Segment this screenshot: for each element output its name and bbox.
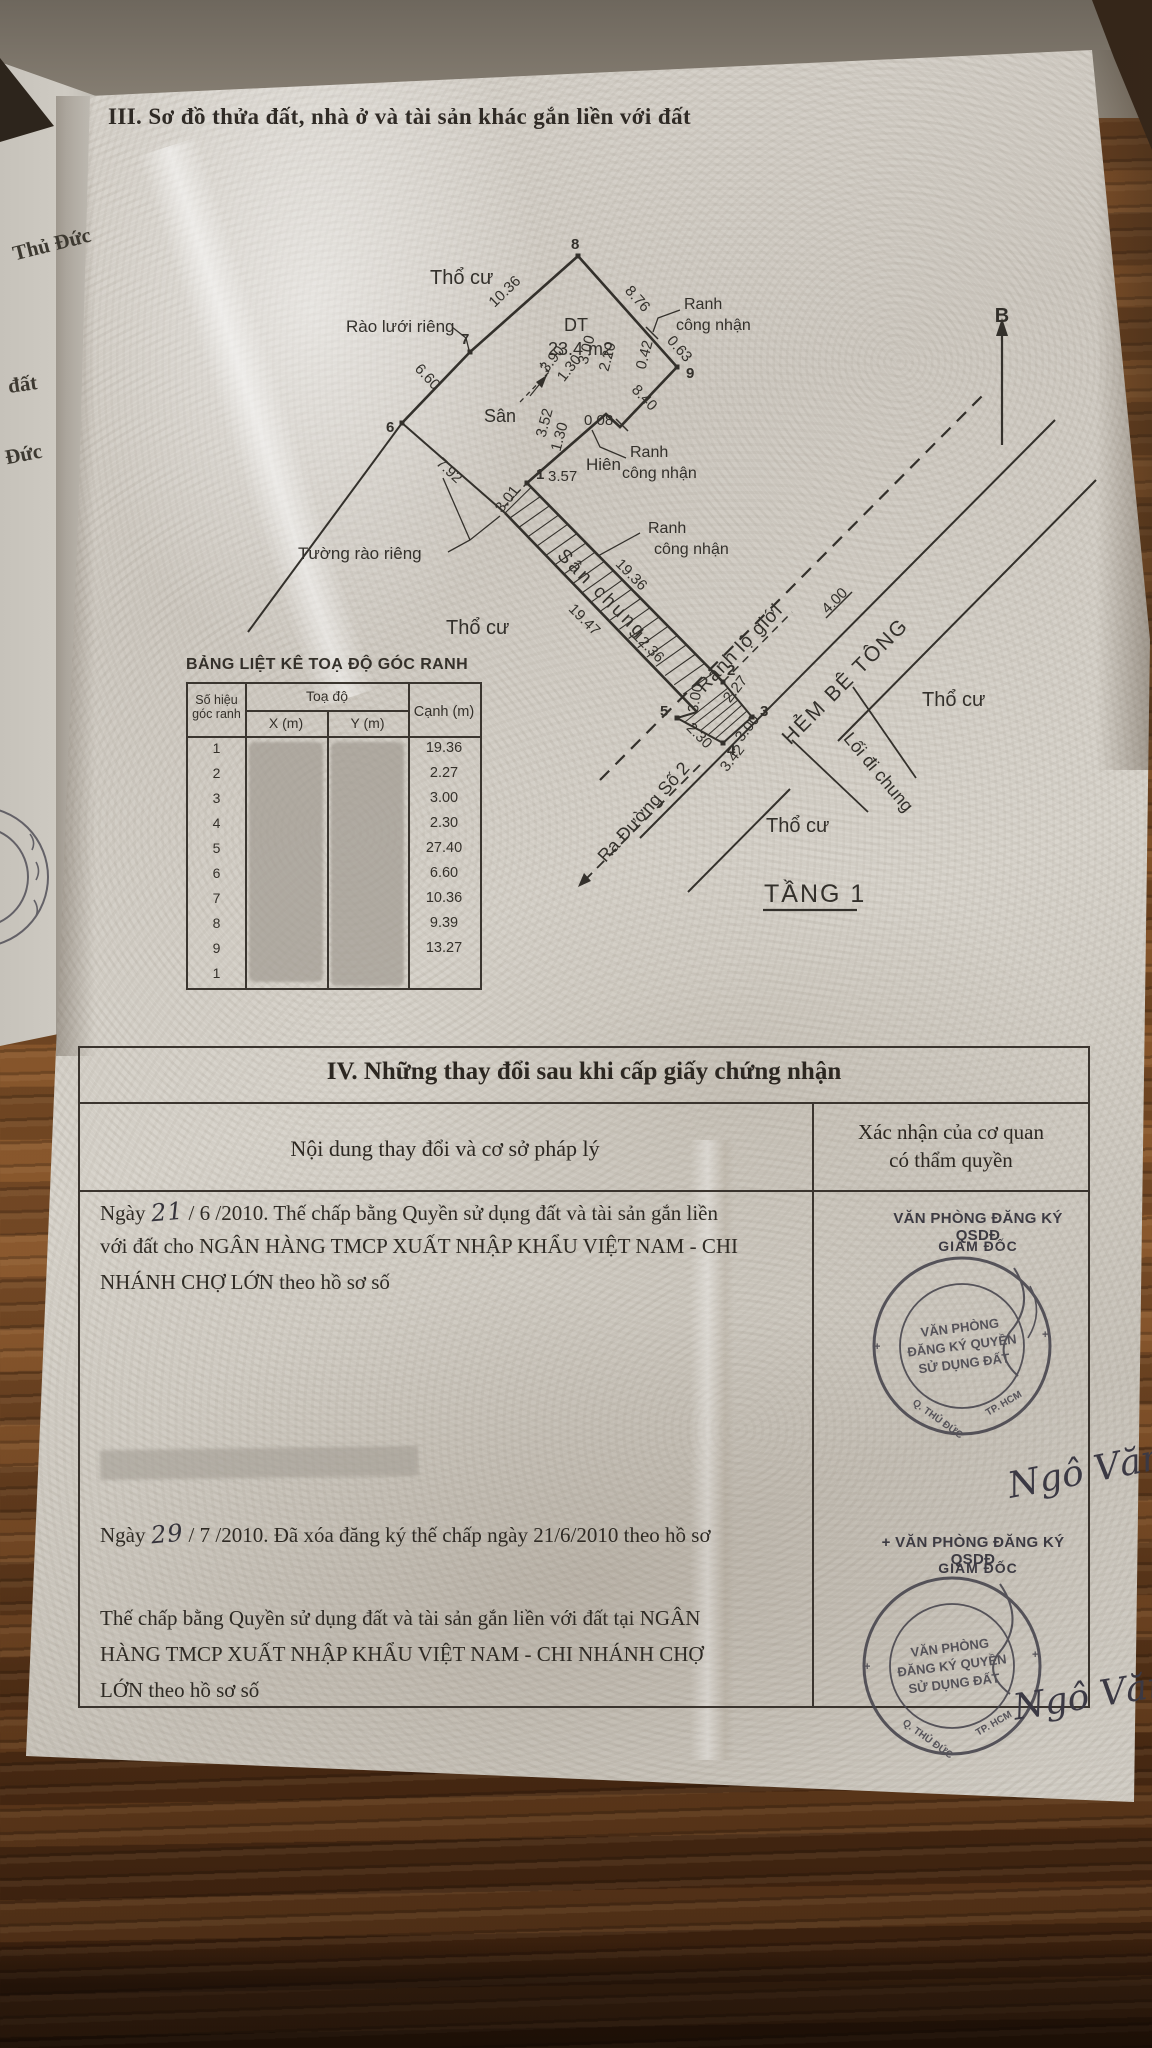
entry-text: / 7 /2010. Đã xóa đăng ký thế chấp ngày … bbox=[183, 1523, 710, 1547]
hatch-line bbox=[528, 515, 558, 536]
svg-text:+: + bbox=[1032, 1649, 1038, 1661]
diagram-label: 0.63 bbox=[663, 332, 695, 365]
boundary-point-marker bbox=[525, 481, 530, 486]
diagram-label: Sân bbox=[484, 406, 516, 426]
entry-text: với đất cho NGÂN HÀNG TMCP XUẤT NHẬP KHẨ… bbox=[100, 1234, 738, 1258]
diagram-label: công nhận bbox=[622, 465, 697, 482]
diagram-label: công nhận bbox=[654, 541, 729, 558]
col-header-coords: Toạ độ bbox=[245, 688, 409, 704]
hatch-line bbox=[537, 524, 567, 545]
divider bbox=[80, 1190, 1088, 1192]
diagram-label: Thổ cư bbox=[446, 617, 509, 639]
svg-text:+: + bbox=[864, 1661, 870, 1673]
change-entry: Thế chấp bằng Quyền sử dụng đất và tài s… bbox=[100, 1606, 800, 1714]
partial-stamp-left-edge bbox=[0, 782, 64, 972]
divider bbox=[80, 1102, 1088, 1104]
edge-length-cell: 10.36 bbox=[408, 890, 480, 906]
redacted-text-smudge bbox=[100, 1446, 418, 1480]
diagram-label: 0.08 bbox=[584, 412, 613, 429]
coordinate-table-grid: Số hiệugóc ranh Toạ độ X (m) Y (m) Cạnh … bbox=[186, 682, 482, 990]
edge-length-cell: 13.27 bbox=[408, 940, 480, 956]
redacted-x-values bbox=[249, 742, 323, 982]
diagram-label: DT bbox=[564, 315, 588, 335]
diagram-label: Rào lưới riêng bbox=[346, 317, 455, 336]
round-stamp-1: VĂN PHÒNG ĐĂNG KÝ QUYỀN SỬ DỤNG ĐẤT Q. T… bbox=[862, 1246, 1062, 1446]
change-entry: Ngày 21 / 6 /2010. Thế chấp bằng Quyền s… bbox=[100, 1198, 800, 1306]
boundary-point-marker bbox=[675, 716, 680, 721]
edge-length-cell: 2.27 bbox=[408, 765, 480, 781]
entry-line: NHÁNH CHỢ LỚN theo hồ sơ số bbox=[100, 1270, 800, 1306]
photo-of-land-certificate: { "colors":{"ink":"#33302b","paper":"#d6… bbox=[0, 0, 1152, 2048]
entry-line: HÀNG TMCP XUẤT NHẬP KHẨU VIỆT NAM - CHI … bbox=[100, 1642, 800, 1678]
divider bbox=[812, 1102, 814, 1706]
point-id-cell: 9 bbox=[188, 940, 245, 956]
boundary-point-marker bbox=[576, 254, 581, 259]
entry-text: / 6 /2010. Thế chấp bằng Quyền sử dụng đ… bbox=[183, 1201, 718, 1225]
diagram-label: 6.60 bbox=[411, 360, 443, 393]
entry-text: Ngày bbox=[100, 1201, 151, 1225]
diagram-label: Lối đi chung bbox=[840, 729, 918, 816]
edge-length-cell: 19.36 bbox=[408, 740, 480, 756]
redacted-y-values bbox=[331, 742, 404, 986]
diagram-label: 1 bbox=[536, 466, 544, 483]
diagram-label: B bbox=[995, 305, 1009, 327]
boundary-point-marker bbox=[721, 741, 726, 746]
diagram-label: Ra Đường Số 2 bbox=[594, 758, 694, 866]
diagram-line bbox=[248, 423, 402, 632]
diagram-label: 3.00 bbox=[685, 682, 707, 714]
diagram-label: Thổ cư bbox=[922, 689, 985, 711]
diagram-label: 7.92 bbox=[433, 455, 466, 487]
point-id-cell: 2 bbox=[188, 765, 245, 781]
point-id-cell: 1 bbox=[188, 965, 245, 981]
col-header-y: Y (m) bbox=[327, 715, 408, 731]
round-stamp-2: VĂN PHÒNG ĐĂNG KÝ QUYỀN SỬ DỤNG ĐẤT Q. T… bbox=[852, 1566, 1052, 1766]
diagram-label: 8 bbox=[571, 236, 579, 253]
boundary-point-marker bbox=[675, 365, 680, 370]
entry-line: Ngày 29 / 7 /2010. Đã xóa đăng ký thế ch… bbox=[100, 1520, 800, 1556]
point-id-cell: 7 bbox=[188, 890, 245, 906]
edge-length-cell: 27.40 bbox=[408, 840, 480, 856]
diagram-label: Ranh bbox=[684, 296, 722, 313]
svg-text:+: + bbox=[1042, 1329, 1048, 1341]
diagram-label: Hiên bbox=[586, 455, 621, 474]
section-3-title: III. Sơ đồ thửa đất, nhà ở và tài sản kh… bbox=[108, 104, 868, 130]
diagram-line bbox=[448, 516, 500, 552]
diagram-label: Ranh bbox=[630, 444, 668, 461]
hatch-line bbox=[665, 654, 695, 675]
hatch-line bbox=[519, 506, 549, 527]
diagram-label: 4.00 bbox=[818, 584, 851, 617]
entry-line: với đất cho NGÂN HÀNG TMCP XUẤT NHẬP KHẨ… bbox=[100, 1234, 800, 1270]
entry-text: HÀNG TMCP XUẤT NHẬP KHẨU VIỆT NAM - CHI … bbox=[100, 1642, 704, 1666]
edge-length-cell: 6.60 bbox=[408, 865, 480, 881]
diagram-label: Thổ cư bbox=[766, 815, 829, 837]
col-header-changes: Nội dung thay đổi và cơ sở pháp lý bbox=[120, 1136, 770, 1162]
margin-note-dat: đất bbox=[6, 370, 38, 399]
boundary-point-marker bbox=[468, 350, 473, 355]
diagram-label: 19.47 bbox=[565, 601, 604, 640]
stamp-director-label-1: GIÁM ĐỐC bbox=[890, 1238, 1066, 1254]
diagram-label: 8.40 bbox=[628, 381, 661, 414]
diagram-label: 6 bbox=[386, 419, 394, 436]
entry-text: Thế chấp bằng Quyền sử dụng đất và tài s… bbox=[100, 1606, 700, 1630]
diagram-line bbox=[443, 478, 470, 540]
diagram-label: TẦNG 1 bbox=[764, 879, 866, 908]
section-4-title: IV. Những thay đổi sau khi cấp giấy chứn… bbox=[80, 1058, 1088, 1086]
entry-text: NHÁNH CHỢ LỚN theo hồ sơ số bbox=[100, 1270, 390, 1294]
diagram-label: 2 bbox=[727, 662, 735, 679]
diagram-label: 9 bbox=[686, 365, 694, 382]
entry-line: LỚN theo hồ sơ số bbox=[100, 1678, 800, 1714]
diagram-label: 7 bbox=[461, 331, 469, 348]
handwritten-date: 29 bbox=[150, 1519, 185, 1550]
diagram-label: 5 bbox=[660, 703, 668, 720]
point-id-cell: 3 bbox=[188, 790, 245, 806]
col-header-edge: Cạnh (m) bbox=[408, 704, 480, 720]
diagram-label: HẺM BÊ TÔNG bbox=[778, 614, 914, 750]
edge-length-cell: 3.00 bbox=[408, 790, 480, 806]
wood-table-dark-band bbox=[0, 1942, 1152, 2048]
stamp-director-label-2: GIÁM ĐỐC bbox=[890, 1560, 1066, 1576]
diagram-label: 3.57 bbox=[548, 468, 577, 485]
diagram-line bbox=[640, 420, 1055, 838]
entry-text: LỚN theo hồ sơ số bbox=[100, 1678, 259, 1702]
change-entry: Ngày 29 / 7 /2010. Đã xóa đăng ký thế ch… bbox=[100, 1520, 800, 1556]
diagram-label: 0.42 bbox=[633, 339, 657, 372]
diagram-label: 4 bbox=[727, 742, 736, 759]
edge-length-cell: 9.39 bbox=[408, 915, 480, 931]
diagram-line bbox=[688, 789, 790, 892]
diagram-label: Ranh bbox=[648, 520, 686, 537]
col-header-authority: Xác nhận của cơ quancó thẩm quyền bbox=[820, 1118, 1082, 1175]
diagram-label: 3 bbox=[760, 703, 768, 720]
diagram-label: Thổ cư bbox=[430, 267, 493, 289]
edge-length-cell: 2.30 bbox=[408, 815, 480, 831]
coordinate-table-title: BẢNG LIỆT KÊ TOẠ ĐỘ GÓC RANH bbox=[186, 656, 486, 674]
entry-line: Thế chấp bằng Quyền sử dụng đất và tài s… bbox=[100, 1606, 800, 1642]
boundary-point-marker bbox=[400, 421, 405, 426]
entry-line: Ngày 21 / 6 /2010. Thế chấp bằng Quyền s… bbox=[100, 1198, 800, 1234]
diagram-label: công nhận bbox=[676, 317, 751, 334]
diagram-line bbox=[527, 483, 723, 682]
diagram-line bbox=[592, 430, 626, 458]
point-id-cell: 1 bbox=[188, 740, 245, 756]
paper-right-edge-shadow bbox=[1096, 50, 1152, 770]
point-id-cell: 6 bbox=[188, 865, 245, 881]
point-id-cell: 5 bbox=[188, 840, 245, 856]
point-id-cell: 4 bbox=[188, 815, 245, 831]
svg-text:+: + bbox=[874, 1341, 880, 1353]
point-id-cell: 8 bbox=[188, 915, 245, 931]
col-header-point-id: Số hiệugóc ranh bbox=[188, 693, 245, 721]
col-header-x: X (m) bbox=[245, 715, 327, 731]
diagram-label: Tường rào riêng bbox=[298, 544, 422, 563]
handwritten-date: 21 bbox=[150, 1197, 185, 1228]
entry-text: Ngày bbox=[100, 1523, 151, 1547]
coordinate-table: BẢNG LIỆT KÊ TOẠ ĐỘ GÓC RANH Số hiệugóc … bbox=[186, 656, 486, 990]
